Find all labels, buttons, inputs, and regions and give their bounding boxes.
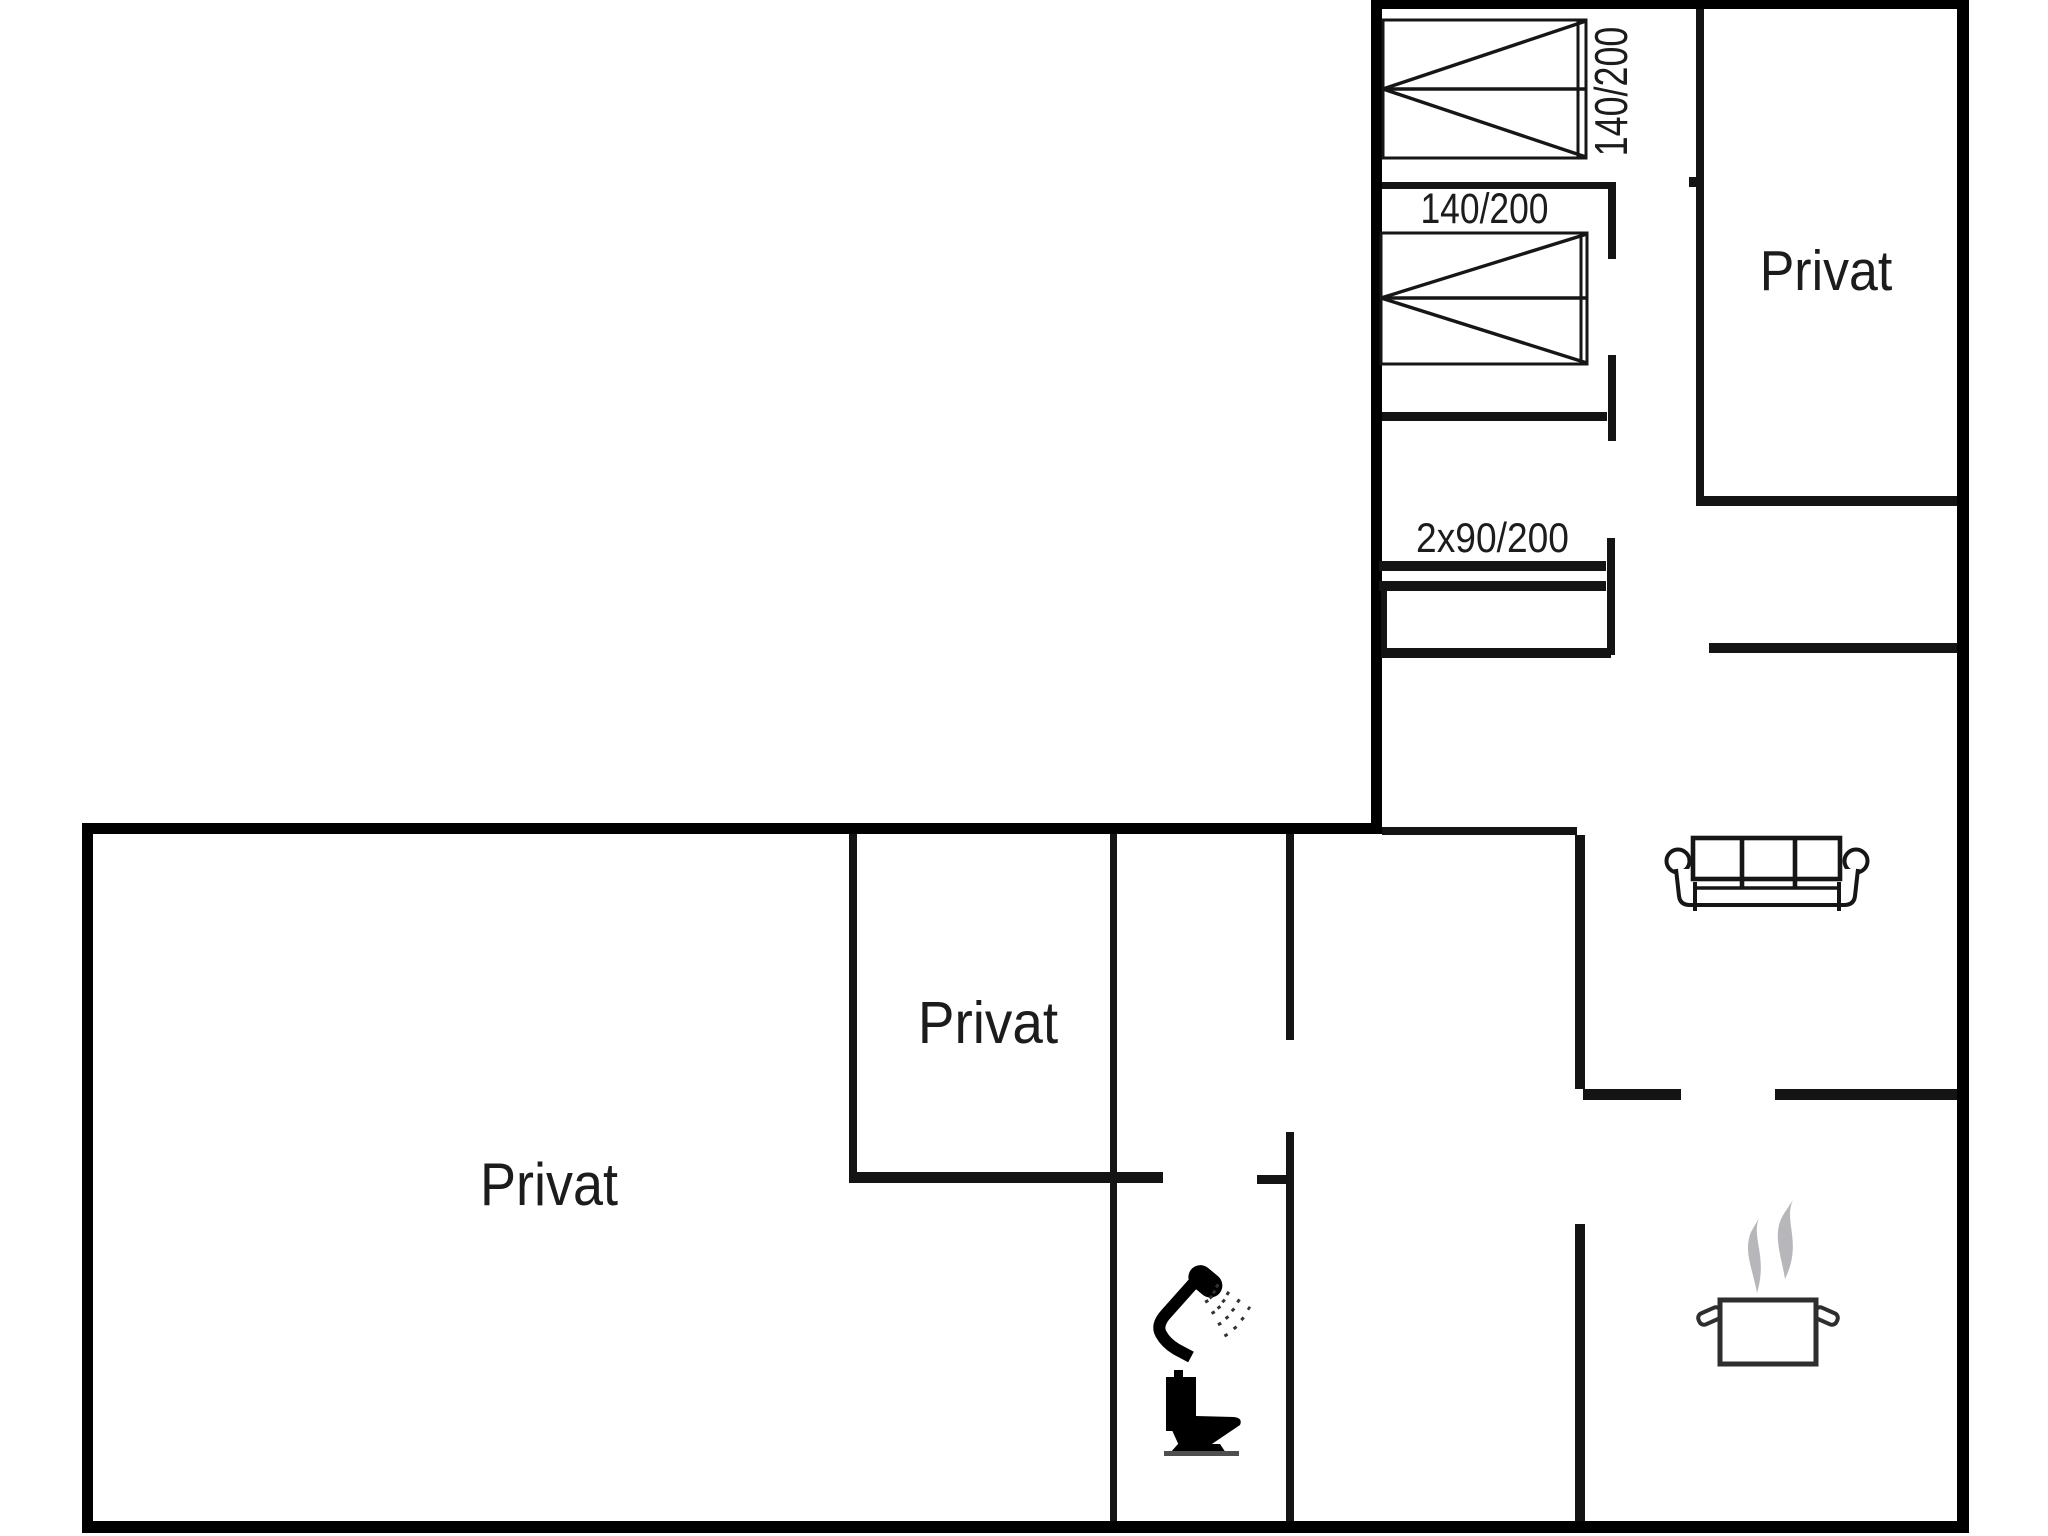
svg-text:2x90/200: 2x90/200 [1416,515,1569,562]
svg-text:140/200: 140/200 [1420,185,1548,233]
svg-text:Privat: Privat [480,1151,618,1218]
svg-text:Privat: Privat [918,990,1058,1056]
svg-text:Privat: Privat [1760,239,1893,303]
svg-text:140/200: 140/200 [1586,27,1637,157]
